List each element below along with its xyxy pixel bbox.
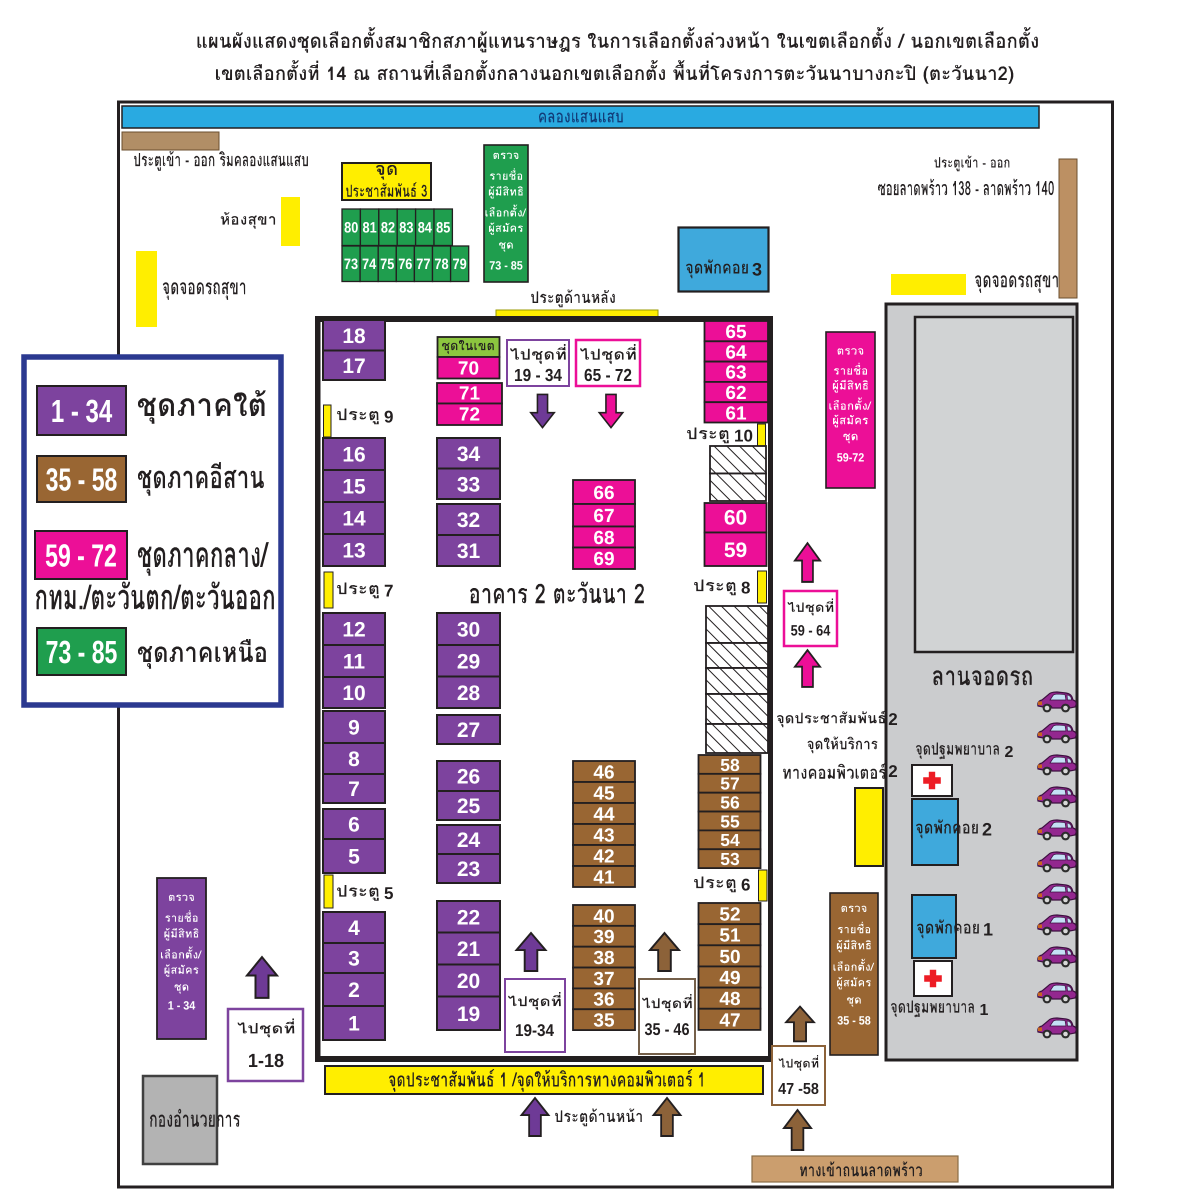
- svg-text:8: 8: [348, 748, 360, 771]
- svg-text:36: 36: [593, 990, 614, 1011]
- svg-text:18: 18: [342, 325, 366, 348]
- svg-text:60: 60: [724, 507, 747, 530]
- svg-text:40: 40: [593, 906, 614, 927]
- svg-text:35 - 58: 35 - 58: [837, 1013, 871, 1027]
- svg-text:77: 77: [416, 256, 430, 273]
- svg-text:78: 78: [434, 256, 448, 273]
- svg-text:41: 41: [593, 867, 615, 888]
- svg-text:73 - 85: 73 - 85: [46, 634, 118, 670]
- svg-text:34: 34: [457, 443, 481, 466]
- svg-text:58: 58: [720, 755, 740, 775]
- svg-text:47: 47: [719, 1010, 740, 1031]
- svg-text:1: 1: [983, 920, 993, 940]
- svg-text:81: 81: [363, 220, 377, 237]
- svg-text:29: 29: [457, 650, 480, 673]
- svg-text:19 - 34: 19 - 34: [514, 365, 562, 385]
- svg-text:82: 82: [381, 220, 395, 237]
- svg-text:53: 53: [720, 849, 740, 869]
- svg-text:2: 2: [888, 762, 897, 781]
- svg-text:69: 69: [593, 549, 614, 570]
- svg-text:67: 67: [593, 506, 614, 527]
- svg-text:1: 1: [348, 1013, 360, 1036]
- svg-text:16: 16: [342, 444, 365, 467]
- svg-text:48: 48: [719, 989, 740, 1010]
- svg-text:14: 14: [342, 508, 366, 531]
- svg-text:76: 76: [398, 256, 412, 273]
- svg-text:1 - 34: 1 - 34: [168, 998, 196, 1012]
- svg-text:70: 70: [458, 358, 479, 379]
- svg-text:31: 31: [457, 540, 481, 563]
- svg-text:8: 8: [741, 579, 750, 598]
- svg-text:15: 15: [342, 476, 366, 499]
- svg-text:1-18: 1-18: [248, 1051, 284, 1072]
- svg-text:51: 51: [719, 926, 741, 947]
- svg-text:46: 46: [593, 762, 614, 783]
- svg-text:35 - 58: 35 - 58: [46, 462, 118, 498]
- svg-text:43: 43: [593, 825, 614, 846]
- svg-text:45: 45: [593, 783, 615, 804]
- svg-text:32: 32: [457, 509, 480, 532]
- svg-text:2: 2: [348, 979, 360, 1002]
- svg-text:73: 73: [344, 256, 358, 273]
- svg-text:80: 80: [344, 220, 358, 237]
- svg-text:19-34: 19-34: [515, 1021, 555, 1040]
- svg-text:3: 3: [752, 260, 762, 280]
- svg-text:25: 25: [457, 795, 481, 818]
- svg-text:2: 2: [982, 820, 992, 840]
- svg-text:7: 7: [348, 778, 360, 801]
- svg-text:27: 27: [457, 719, 480, 742]
- svg-text:39: 39: [593, 927, 614, 948]
- svg-text:11: 11: [343, 651, 366, 674]
- svg-text:10: 10: [734, 427, 753, 446]
- svg-text:75: 75: [380, 256, 394, 273]
- svg-text:35: 35: [593, 1011, 615, 1032]
- svg-text:59-72: 59-72: [837, 450, 865, 464]
- svg-text:54: 54: [720, 830, 740, 850]
- svg-text:12: 12: [342, 619, 365, 642]
- svg-text:9: 9: [384, 408, 393, 427]
- svg-text:66: 66: [593, 483, 614, 504]
- svg-text:30: 30: [457, 619, 480, 642]
- svg-text:9: 9: [348, 717, 360, 740]
- svg-text:61: 61: [725, 403, 747, 424]
- svg-text:6: 6: [348, 814, 360, 837]
- svg-text:57: 57: [720, 774, 739, 794]
- svg-text:84: 84: [418, 220, 433, 237]
- svg-text:52: 52: [719, 905, 740, 926]
- svg-text:56: 56: [720, 793, 740, 813]
- svg-text:83: 83: [399, 220, 413, 237]
- svg-text:2: 2: [1005, 744, 1014, 761]
- svg-text:2: 2: [888, 710, 897, 729]
- svg-text:68: 68: [593, 528, 614, 549]
- svg-text:64: 64: [725, 342, 747, 363]
- svg-text:44: 44: [593, 804, 615, 825]
- svg-text:59 - 64: 59 - 64: [791, 623, 831, 640]
- svg-text:71: 71: [459, 383, 481, 404]
- svg-text:13: 13: [342, 540, 365, 563]
- svg-text:5: 5: [384, 884, 393, 903]
- svg-text:59 - 72: 59 - 72: [45, 538, 117, 574]
- svg-text:1: 1: [980, 1002, 989, 1019]
- svg-text:63: 63: [725, 363, 746, 384]
- svg-text:21: 21: [457, 938, 481, 961]
- svg-text:7: 7: [384, 582, 393, 601]
- svg-text:47 -58: 47 -58: [778, 1081, 819, 1098]
- svg-text:74: 74: [362, 256, 377, 273]
- svg-text:17: 17: [342, 355, 365, 378]
- svg-text:65 - 72: 65 - 72: [584, 365, 632, 385]
- svg-text:28: 28: [457, 682, 481, 705]
- svg-text:3: 3: [348, 948, 360, 971]
- svg-text:24: 24: [457, 829, 481, 852]
- svg-text:62: 62: [725, 383, 746, 404]
- svg-text:73 - 85: 73 - 85: [489, 258, 523, 272]
- svg-text:72: 72: [459, 404, 480, 425]
- svg-text:85: 85: [436, 220, 450, 237]
- svg-text:35 - 46: 35 - 46: [645, 1020, 690, 1039]
- svg-text:10: 10: [342, 682, 365, 705]
- svg-text:59: 59: [724, 539, 747, 562]
- svg-text:6: 6: [741, 876, 750, 895]
- svg-text:37: 37: [593, 969, 614, 990]
- svg-text:55: 55: [720, 811, 740, 831]
- svg-text:5: 5: [348, 846, 360, 869]
- svg-text:26: 26: [457, 766, 480, 789]
- svg-text:79: 79: [453, 256, 467, 273]
- svg-text:65: 65: [725, 322, 747, 343]
- svg-text:1 - 34: 1 - 34: [51, 393, 113, 429]
- svg-text:23: 23: [457, 858, 480, 881]
- svg-text:20: 20: [457, 970, 480, 993]
- svg-text:50: 50: [719, 947, 740, 968]
- svg-text:19: 19: [457, 1003, 480, 1026]
- svg-text:33: 33: [457, 473, 480, 496]
- svg-text:22: 22: [457, 906, 480, 929]
- svg-text:42: 42: [593, 846, 614, 867]
- svg-text:49: 49: [719, 968, 740, 989]
- svg-text:38: 38: [593, 948, 614, 969]
- svg-text:4: 4: [348, 917, 360, 940]
